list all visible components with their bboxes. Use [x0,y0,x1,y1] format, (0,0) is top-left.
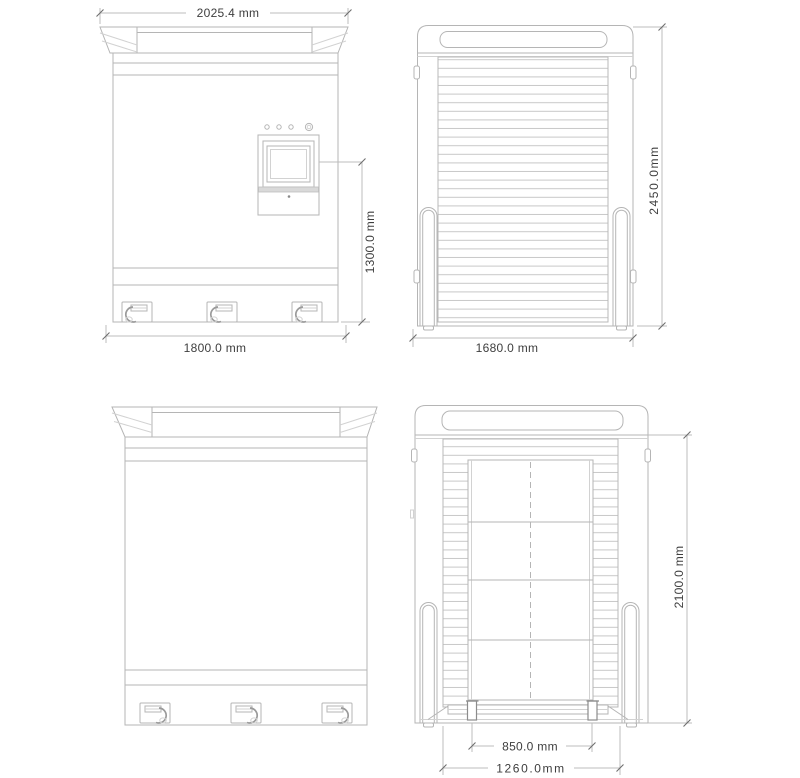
rear-bollard-left [420,603,437,728]
dim-label-side-base-depth: 1680.0 mm [476,341,539,355]
rear-bollard-right [622,603,639,728]
ramp-post-left [468,701,477,720]
dim-front-top-width: 2025.4 mm [97,5,352,24]
back-cabinet-body [125,437,367,725]
side-louver-panel [438,57,608,322]
dimension-drawing: 2025.4 mm [0,0,800,778]
side-top-cap [418,26,634,57]
dim-rear-height: 2100.0 mm [648,432,692,727]
dim-label-rear-ramp-width: 850.0 mm [502,740,558,754]
rear-top-cap [415,406,648,439]
side-view: 2450.0mm 1680.0 mm [410,24,668,356]
rear-view: 2100.0 mm 850.0 mm 1260.0mm [411,406,693,776]
side-bollard-left [420,208,437,331]
dim-label-front-top-width: 2025.4 mm [197,6,260,20]
dim-label-side-height: 2450.0mm [647,145,661,215]
back-view [112,407,377,725]
front-roof [100,27,348,53]
dim-side-height: 2450.0mm [633,24,667,330]
dim-rear-ramp-width: 850.0 mm [469,723,596,754]
dim-label-front-base-width: 1800.0 mm [184,341,247,355]
dim-label-rear-height: 2100.0 mm [672,546,686,609]
battery-rack-grid [468,460,593,700]
front-view: 2025.4 mm [97,5,378,355]
panel-button-dot [288,195,291,198]
ramp-post-right [588,701,597,720]
touchscreen-panel [258,135,319,215]
dim-front-base-width: 1800.0 mm [103,325,350,355]
dim-side-base-depth: 1680.0 mm [410,329,637,355]
back-roof [112,407,377,437]
side-bollard-right [613,208,630,331]
drawing-svg: 2025.4 mm [0,0,800,778]
dim-label-screen-height: 1300.0 mm [363,211,377,274]
dim-label-rear-base-width: 1260.0mm [496,762,566,776]
